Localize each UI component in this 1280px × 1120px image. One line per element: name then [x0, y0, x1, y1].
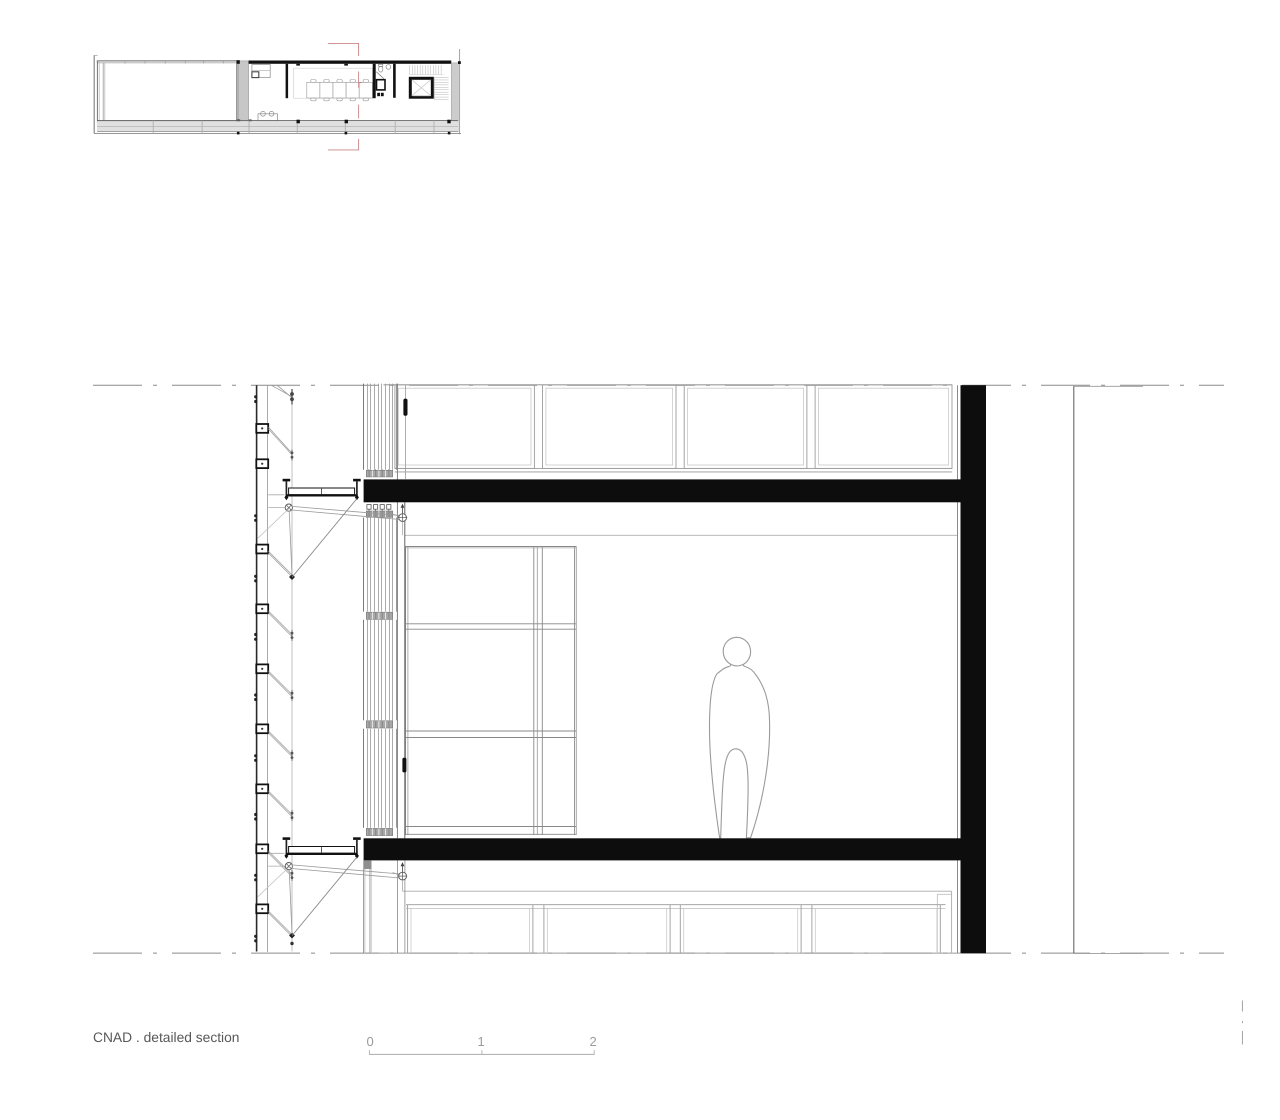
svg-text:1: 1 [478, 1034, 485, 1049]
svg-text:2: 2 [590, 1034, 597, 1049]
svg-text:0: 0 [367, 1034, 374, 1049]
svg-text:CNAD . detailed section: CNAD . detailed section [93, 1030, 239, 1045]
